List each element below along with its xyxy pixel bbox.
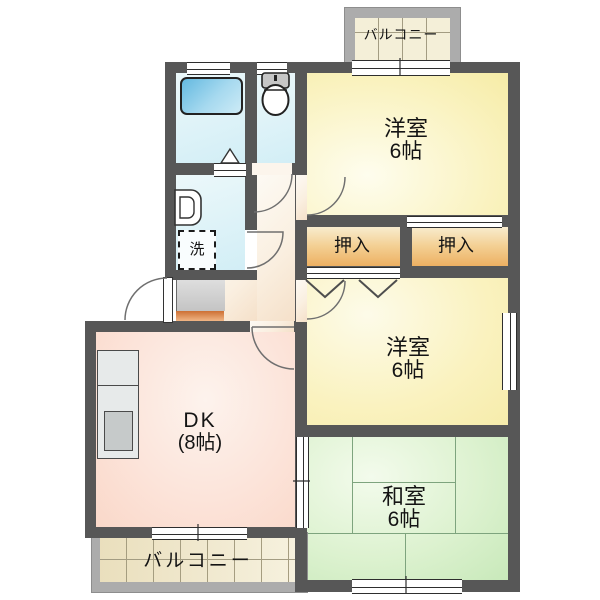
room-name: DK [178,410,222,433]
toilet-door-arc [254,174,292,212]
floorplan: 洗 洋室 [0,0,600,600]
balcony-top-label: バルコニー [364,27,439,42]
dk-door-arc [252,327,294,369]
entrance-door-arc [125,278,167,320]
door-swing-overlay [0,0,600,600]
toilet-icon [262,73,289,115]
closet-chevron-icon [306,280,344,297]
closet-left-label: 押入 [334,236,370,255]
room-size: 6帖 [384,141,428,164]
room-label-western-top: 洋室 6帖 [384,117,428,163]
closet-chevron-icon [359,280,397,297]
room-size: 6帖 [386,360,430,383]
room-name: 和室 [382,485,426,509]
room-label-japanese: 和室 6帖 [382,485,426,531]
washroom-door-arc [247,232,283,268]
bath-folding-door-icon [221,149,239,163]
washbasin-icon [175,190,201,225]
window-tick-marks [198,58,406,593]
balcony-bottom-label: バルコニー [143,552,253,573]
western-top-door-arc [307,177,345,215]
room-size: (8帖) [178,433,222,455]
room-name: 洋室 [386,336,430,360]
room-size: 6帖 [382,509,426,532]
room-label-western-mid: 洋室 6帖 [386,336,430,382]
room-label-dk: DK (8帖) [178,410,222,454]
closet-right-label: 押入 [438,236,474,255]
room-name: 洋室 [384,117,428,141]
